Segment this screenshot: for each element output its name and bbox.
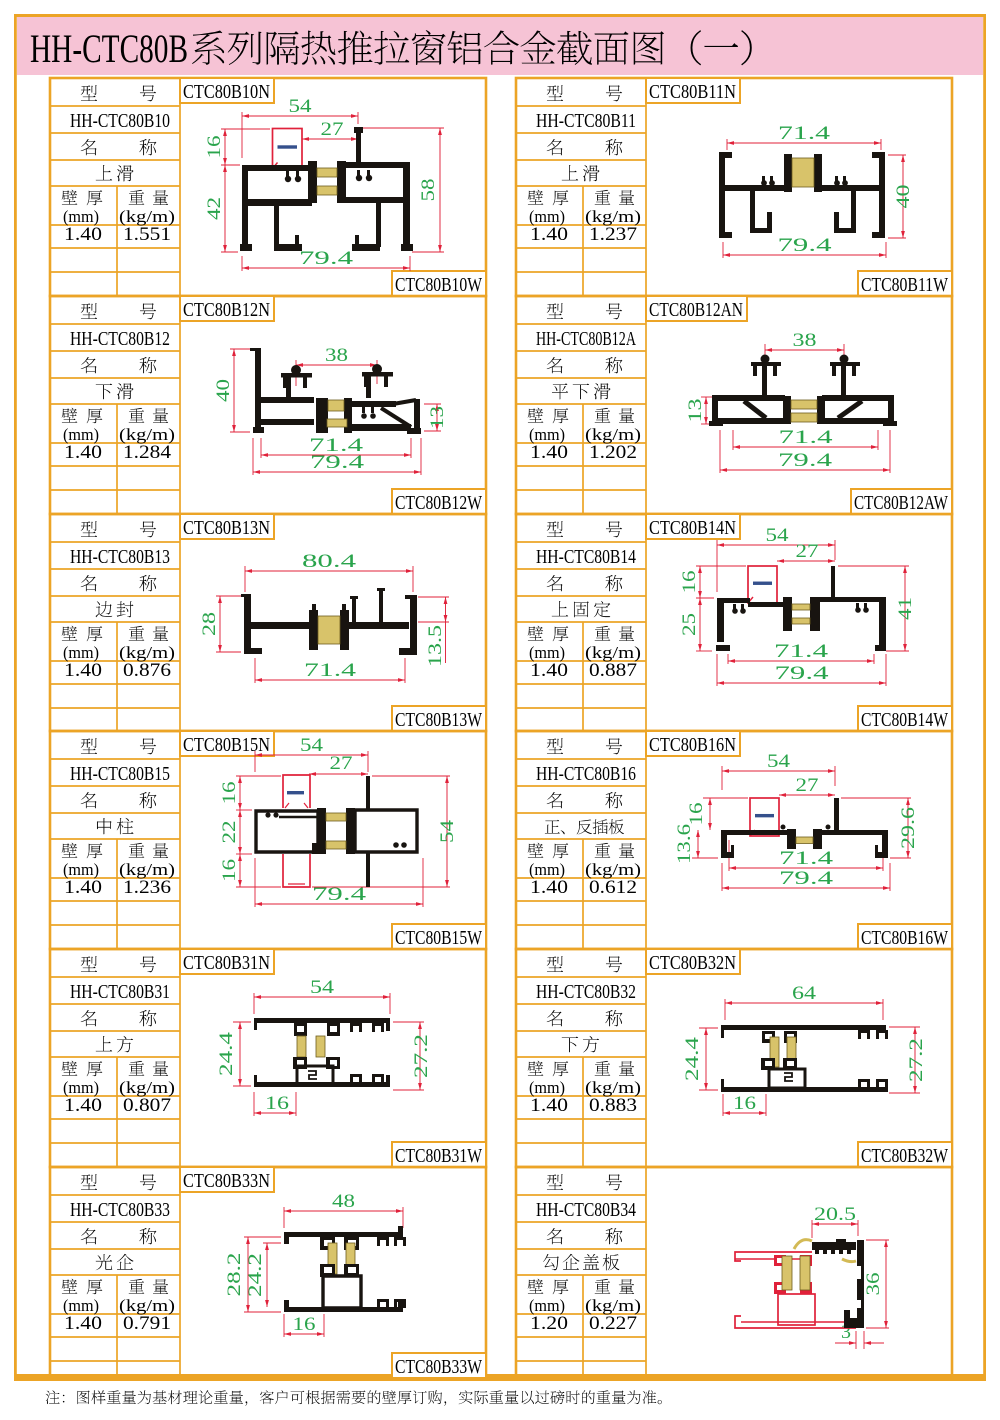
svg-text:16: 16 [204,136,225,159]
svg-text:22: 22 [219,821,240,844]
svg-text:54: 54 [766,525,790,546]
svg-text:16: 16 [733,1093,756,1114]
svg-text:1.237: 1.237 [589,224,637,245]
svg-text:CTC80B33W: CTC80B33W [395,1356,482,1378]
svg-text:HH-CTC80B16: HH-CTC80B16 [536,763,636,785]
svg-text:CTC80B12AN: CTC80B12AN [649,299,743,321]
svg-text:54: 54 [767,751,791,772]
svg-text:48: 48 [332,1191,355,1212]
svg-text:CTC80B16W: CTC80B16W [861,927,948,949]
svg-text:71.4: 71.4 [779,848,834,869]
svg-text:54: 54 [437,819,458,843]
svg-text:1.202: 1.202 [589,442,637,463]
svg-text:29.6: 29.6 [898,807,919,849]
svg-text:71.4: 71.4 [779,427,834,448]
svg-text:HH-CTC80B32: HH-CTC80B32 [536,981,636,1003]
svg-text:13: 13 [427,406,448,429]
svg-text:0.883: 0.883 [589,1095,637,1116]
svg-text:CTC80B31W: CTC80B31W [395,1145,482,1167]
svg-text:0.227: 0.227 [589,1313,637,1334]
svg-text:79.4: 79.4 [775,663,830,684]
svg-text:54: 54 [300,735,324,756]
svg-text:CTC80B33N: CTC80B33N [183,1170,270,1192]
svg-text:0.876: 0.876 [123,660,171,681]
svg-text:CTC80B32W: CTC80B32W [861,1145,948,1167]
svg-text:0.807: 0.807 [123,1095,171,1116]
svg-text:64: 64 [792,983,817,1004]
svg-text:16: 16 [219,782,240,805]
svg-text:CTC80B12AW: CTC80B12AW [854,492,948,514]
svg-text:CTC80B15W: CTC80B15W [395,927,482,949]
svg-text:27: 27 [796,775,819,796]
svg-text:CTC80B16N: CTC80B16N [649,734,736,756]
svg-text:1.40: 1.40 [64,660,102,681]
svg-text:24.2: 24.2 [245,1253,266,1297]
svg-text:38: 38 [325,345,348,366]
svg-text:54: 54 [289,96,313,117]
svg-text:40: 40 [213,379,234,402]
svg-text:16: 16 [686,803,707,826]
svg-text:1.284: 1.284 [123,442,172,463]
svg-text:CTC80B12W: CTC80B12W [395,492,482,514]
svg-text:27.2: 27.2 [411,1034,432,1078]
svg-text:13.6: 13.6 [674,824,695,864]
svg-text:71.4: 71.4 [304,660,357,681]
svg-text:HH-CTC80B12A: HH-CTC80B12A [536,328,636,350]
svg-text:20.5: 20.5 [814,1204,856,1225]
svg-text:1.40: 1.40 [64,1313,102,1334]
svg-text:CTC80B31N: CTC80B31N [183,952,270,974]
svg-text:HH-CTC80B14: HH-CTC80B14 [536,546,636,568]
svg-text:1.40: 1.40 [530,877,568,898]
svg-text:HH-CTC80B10: HH-CTC80B10 [70,110,170,132]
svg-text:CTC80B12N: CTC80B12N [183,299,270,321]
svg-text:1.40: 1.40 [64,224,102,245]
svg-text:27: 27 [330,753,353,774]
svg-text:CTC80B14N: CTC80B14N [649,517,736,539]
svg-text:16: 16 [679,571,700,594]
svg-text:CTC80B15N: CTC80B15N [183,734,270,756]
svg-text:HH-CTC80B31: HH-CTC80B31 [70,981,170,1003]
svg-text:28: 28 [199,612,220,636]
svg-text:80.4: 80.4 [302,551,357,572]
svg-text:38: 38 [793,330,817,351]
svg-text:1.551: 1.551 [123,224,171,245]
svg-text:HH-CTC80B12: HH-CTC80B12 [70,328,170,350]
svg-text:79.4: 79.4 [312,884,367,905]
svg-text:27.2: 27.2 [906,1038,927,1082]
svg-text:27: 27 [796,541,819,562]
svg-text:25: 25 [679,613,700,636]
svg-text:HH-CTC80B34: HH-CTC80B34 [536,1199,636,1221]
svg-text:1.40: 1.40 [530,224,568,245]
svg-text:16: 16 [293,1314,316,1335]
svg-text:HH-CTC80B: HH-CTC80B [30,26,188,71]
svg-text:28.2: 28.2 [224,1253,245,1297]
svg-text:13: 13 [685,399,706,423]
svg-text:24.4: 24.4 [216,1031,237,1076]
svg-text:CTC80B10N: CTC80B10N [183,81,270,103]
svg-text:1.236: 1.236 [123,877,171,898]
svg-text:0.887: 0.887 [589,660,637,681]
svg-text:71.4: 71.4 [774,641,829,662]
svg-text:36: 36 [863,1273,884,1296]
svg-text:CTC80B10W: CTC80B10W [395,274,482,296]
svg-text:CTC80B32N: CTC80B32N [649,952,736,974]
svg-text:1.40: 1.40 [530,660,568,681]
svg-text:27: 27 [321,119,344,140]
svg-text:16: 16 [265,1093,289,1114]
svg-text:1.40: 1.40 [530,1095,568,1116]
svg-text:79.4: 79.4 [779,868,834,889]
svg-text:13.5: 13.5 [425,625,446,667]
svg-text:HH-CTC80B11: HH-CTC80B11 [536,110,636,132]
svg-text:CTC80B13N: CTC80B13N [183,517,270,539]
svg-text:0.612: 0.612 [589,877,637,898]
svg-text:1.20: 1.20 [530,1313,568,1334]
svg-text:16: 16 [219,859,240,882]
svg-text:1.40: 1.40 [64,442,102,463]
svg-text:HH-CTC80B15: HH-CTC80B15 [70,763,170,785]
svg-text:79.4: 79.4 [310,452,365,473]
svg-text:54: 54 [310,977,335,998]
svg-text:24.4: 24.4 [682,1036,703,1081]
svg-text:79.4: 79.4 [778,235,833,256]
svg-text:71.4: 71.4 [778,123,831,144]
svg-text:79.4: 79.4 [299,248,354,269]
svg-text:42: 42 [204,197,225,220]
svg-text:58: 58 [418,179,439,202]
svg-text:0.791: 0.791 [123,1313,171,1334]
svg-text:CTC80B11W: CTC80B11W [861,274,948,296]
svg-text:CTC80B11N: CTC80B11N [649,81,736,103]
svg-text:1.40: 1.40 [64,1095,102,1116]
svg-text:CTC80B14W: CTC80B14W [861,709,948,731]
svg-text:1.40: 1.40 [64,877,102,898]
svg-text:41: 41 [895,597,916,620]
svg-text:79.4: 79.4 [778,450,833,471]
svg-text:CTC80B13W: CTC80B13W [395,709,482,731]
svg-text:40: 40 [893,185,914,209]
svg-text:HH-CTC80B13: HH-CTC80B13 [70,546,170,568]
svg-text:1.40: 1.40 [530,442,568,463]
svg-text:HH-CTC80B33: HH-CTC80B33 [70,1199,170,1221]
